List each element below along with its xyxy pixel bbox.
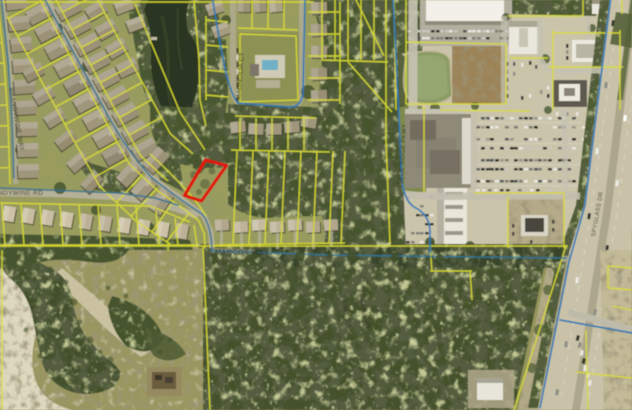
- svg-text:BRANDYWINE RD: BRANDYWINE RD: [0, 190, 43, 197]
- svg-text:MARCOS WAY: MARCOS WAY: [215, 249, 269, 257]
